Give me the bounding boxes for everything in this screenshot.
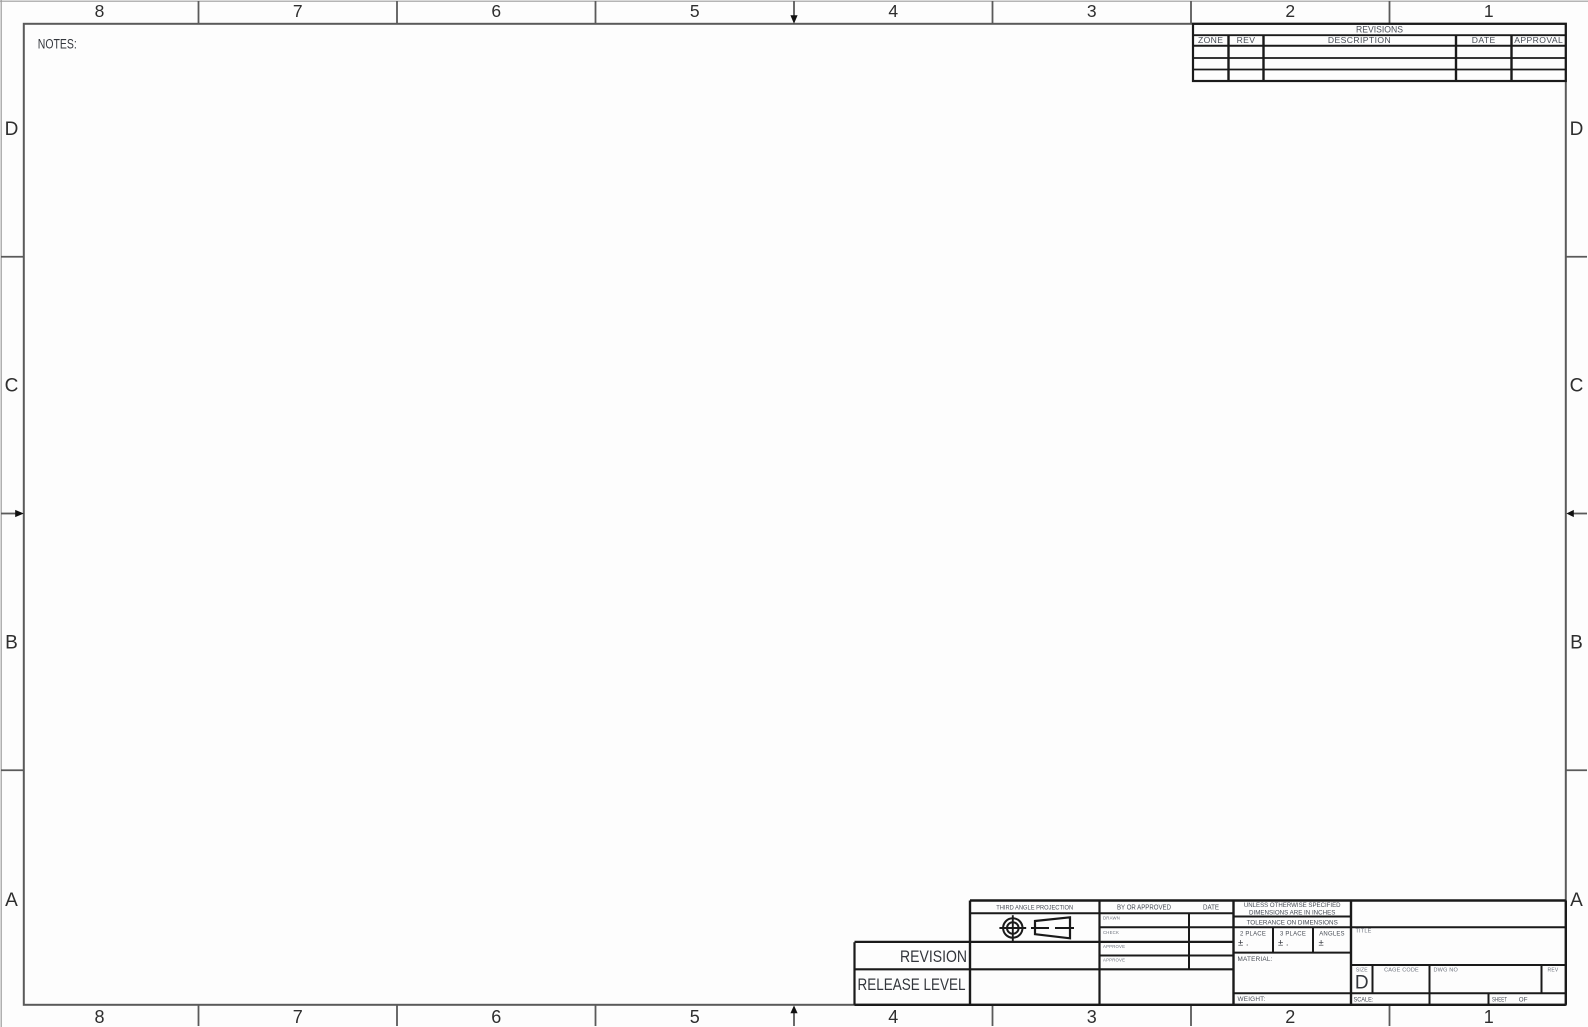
svg-text:5: 5 [690,1,700,21]
svg-text:CAGE CODE: CAGE CODE [1384,968,1419,974]
svg-text:A: A [1570,890,1583,911]
svg-text:2: 2 [1285,1007,1295,1027]
svg-text:5: 5 [690,1007,700,1027]
svg-text:7: 7 [293,1007,303,1027]
svg-text:4: 4 [888,1007,898,1027]
svg-text:REVISION: REVISION [900,947,967,966]
svg-text:A: A [5,890,18,911]
svg-text:6: 6 [491,1007,501,1027]
svg-text:C: C [5,376,19,397]
svg-text:THIRD ANGLE PROJECTION: THIRD ANGLE PROJECTION [996,904,1073,911]
svg-text:B: B [5,633,18,654]
svg-text:DATE: DATE [1203,905,1219,912]
svg-text:REV: REV [1237,35,1256,45]
svg-text:UNLESS OTHERWISE SPECIFIED: UNLESS OTHERWISE SPECIFIED [1244,902,1341,909]
svg-text:8: 8 [95,1,105,21]
svg-text:BY OR APPROVED: BY OR APPROVED [1117,905,1171,912]
svg-text:6: 6 [491,1,501,21]
svg-text:D: D [1355,973,1369,994]
svg-text:3: 3 [1087,1,1097,21]
svg-text:APPROVAL: APPROVAL [1514,35,1563,45]
svg-text:SCALE:: SCALE: [1354,997,1374,1004]
svg-text:DIMENSIONS ARE IN INCHES: DIMENSIONS ARE IN INCHES [1249,909,1335,916]
svg-text:APPROVE: APPROVE [1103,944,1125,949]
svg-text:NOTES:: NOTES: [38,37,77,52]
svg-text:D: D [5,119,19,140]
svg-text:OF: OF [1519,997,1528,1004]
svg-text:7: 7 [293,1,303,21]
svg-text:2 PLACE: 2 PLACE [1240,931,1266,937]
svg-text:APPROVE: APPROVE [1103,957,1125,962]
svg-text:ZONE: ZONE [1198,35,1223,45]
svg-text:SHEET: SHEET [1492,997,1507,1004]
svg-text:REV: REV [1548,968,1559,974]
svg-text:3: 3 [1087,1007,1097,1027]
svg-text:D: D [1570,119,1584,140]
svg-text:1: 1 [1484,1,1494,21]
svg-text:DRAWN: DRAWN [1103,916,1120,921]
svg-text:2: 2 [1285,1,1295,21]
svg-text:DESCRIPTION: DESCRIPTION [1328,35,1391,45]
svg-text:RELEASE LEVEL: RELEASE LEVEL [858,975,966,994]
svg-text:± .: ± . [1278,938,1289,949]
svg-text:3 PLACE: 3 PLACE [1280,931,1306,937]
svg-text:MATERIAL:: MATERIAL: [1238,956,1273,963]
svg-text:4: 4 [888,1,898,21]
svg-text:WEIGHT:: WEIGHT: [1238,996,1266,1003]
svg-text:± .: ± . [1238,938,1249,949]
svg-text:CHECK: CHECK [1103,930,1119,935]
svg-text:DWG NO: DWG NO [1434,968,1459,974]
svg-text:±: ± [1319,938,1324,949]
svg-text:REVISIONS: REVISIONS [1356,25,1403,36]
svg-text:8: 8 [94,1007,104,1027]
svg-text:B: B [1570,633,1583,654]
svg-text:DATE: DATE [1472,35,1496,45]
svg-text:ANGLES: ANGLES [1319,931,1345,937]
svg-text:C: C [1570,376,1584,397]
svg-text:TOLERANCE ON DIMENSIONS: TOLERANCE ON DIMENSIONS [1247,919,1338,926]
svg-text:TITLE: TITLE [1356,929,1372,935]
svg-text:1: 1 [1484,1007,1494,1027]
